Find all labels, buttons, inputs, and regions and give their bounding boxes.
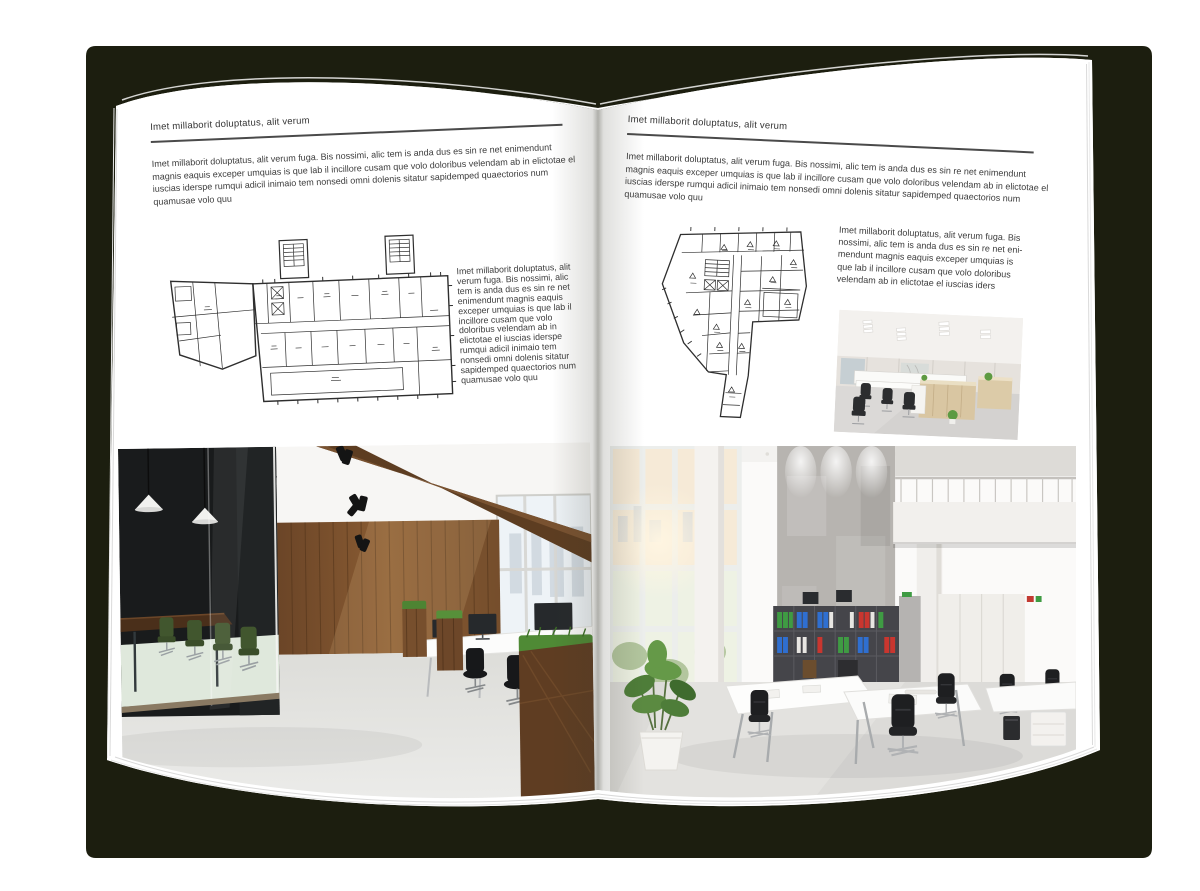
plan-markers xyxy=(685,237,798,395)
fire-sign xyxy=(1027,596,1034,602)
right-caption-text: Imet millaborit doluptatus, alit verum f… xyxy=(836,224,1029,294)
left-intro-paragraph: Imet millaborit doluptatus, alit verum f… xyxy=(152,140,578,208)
open-brochure-mockup: Imet millaborit doluptatus, alit verum I… xyxy=(0,0,1200,891)
right-intro-paragraph: Imet millaborit doluptatus, alit verum f… xyxy=(624,150,1050,220)
left-page-photo xyxy=(118,442,595,809)
downlight-glow xyxy=(785,446,816,498)
safety-sign xyxy=(1036,596,1042,602)
back-right-wall xyxy=(899,592,1042,682)
small-office-photo xyxy=(834,310,1023,440)
right-page-photo xyxy=(610,446,1076,808)
left-page-header: Imet millaborit doluptatus, alit verum xyxy=(150,104,570,133)
open-plan-office-interior-image xyxy=(834,310,1023,440)
stair-tower xyxy=(279,235,414,279)
right-page-header: Imet millaborit doluptatus, alit verum xyxy=(628,114,1048,144)
dark-loft-office-interior-image xyxy=(118,442,595,809)
right-floor-plan xyxy=(646,221,827,427)
wide-office-floor-plan-drawing xyxy=(161,219,461,421)
spread-content: Imet millaborit doluptatus, alit verum I… xyxy=(0,0,1200,891)
exit-sign xyxy=(902,592,912,597)
hallway xyxy=(899,596,921,682)
meeting-room xyxy=(118,447,280,717)
bright-atrium-office-interior-image xyxy=(610,446,1076,808)
wood-wall xyxy=(277,520,501,655)
irregular-office-floor-plan-drawing xyxy=(646,221,827,427)
left-floor-plan xyxy=(161,219,461,421)
left-caption-text: Imet millaborit doluptatus, alit verum f… xyxy=(456,262,587,386)
